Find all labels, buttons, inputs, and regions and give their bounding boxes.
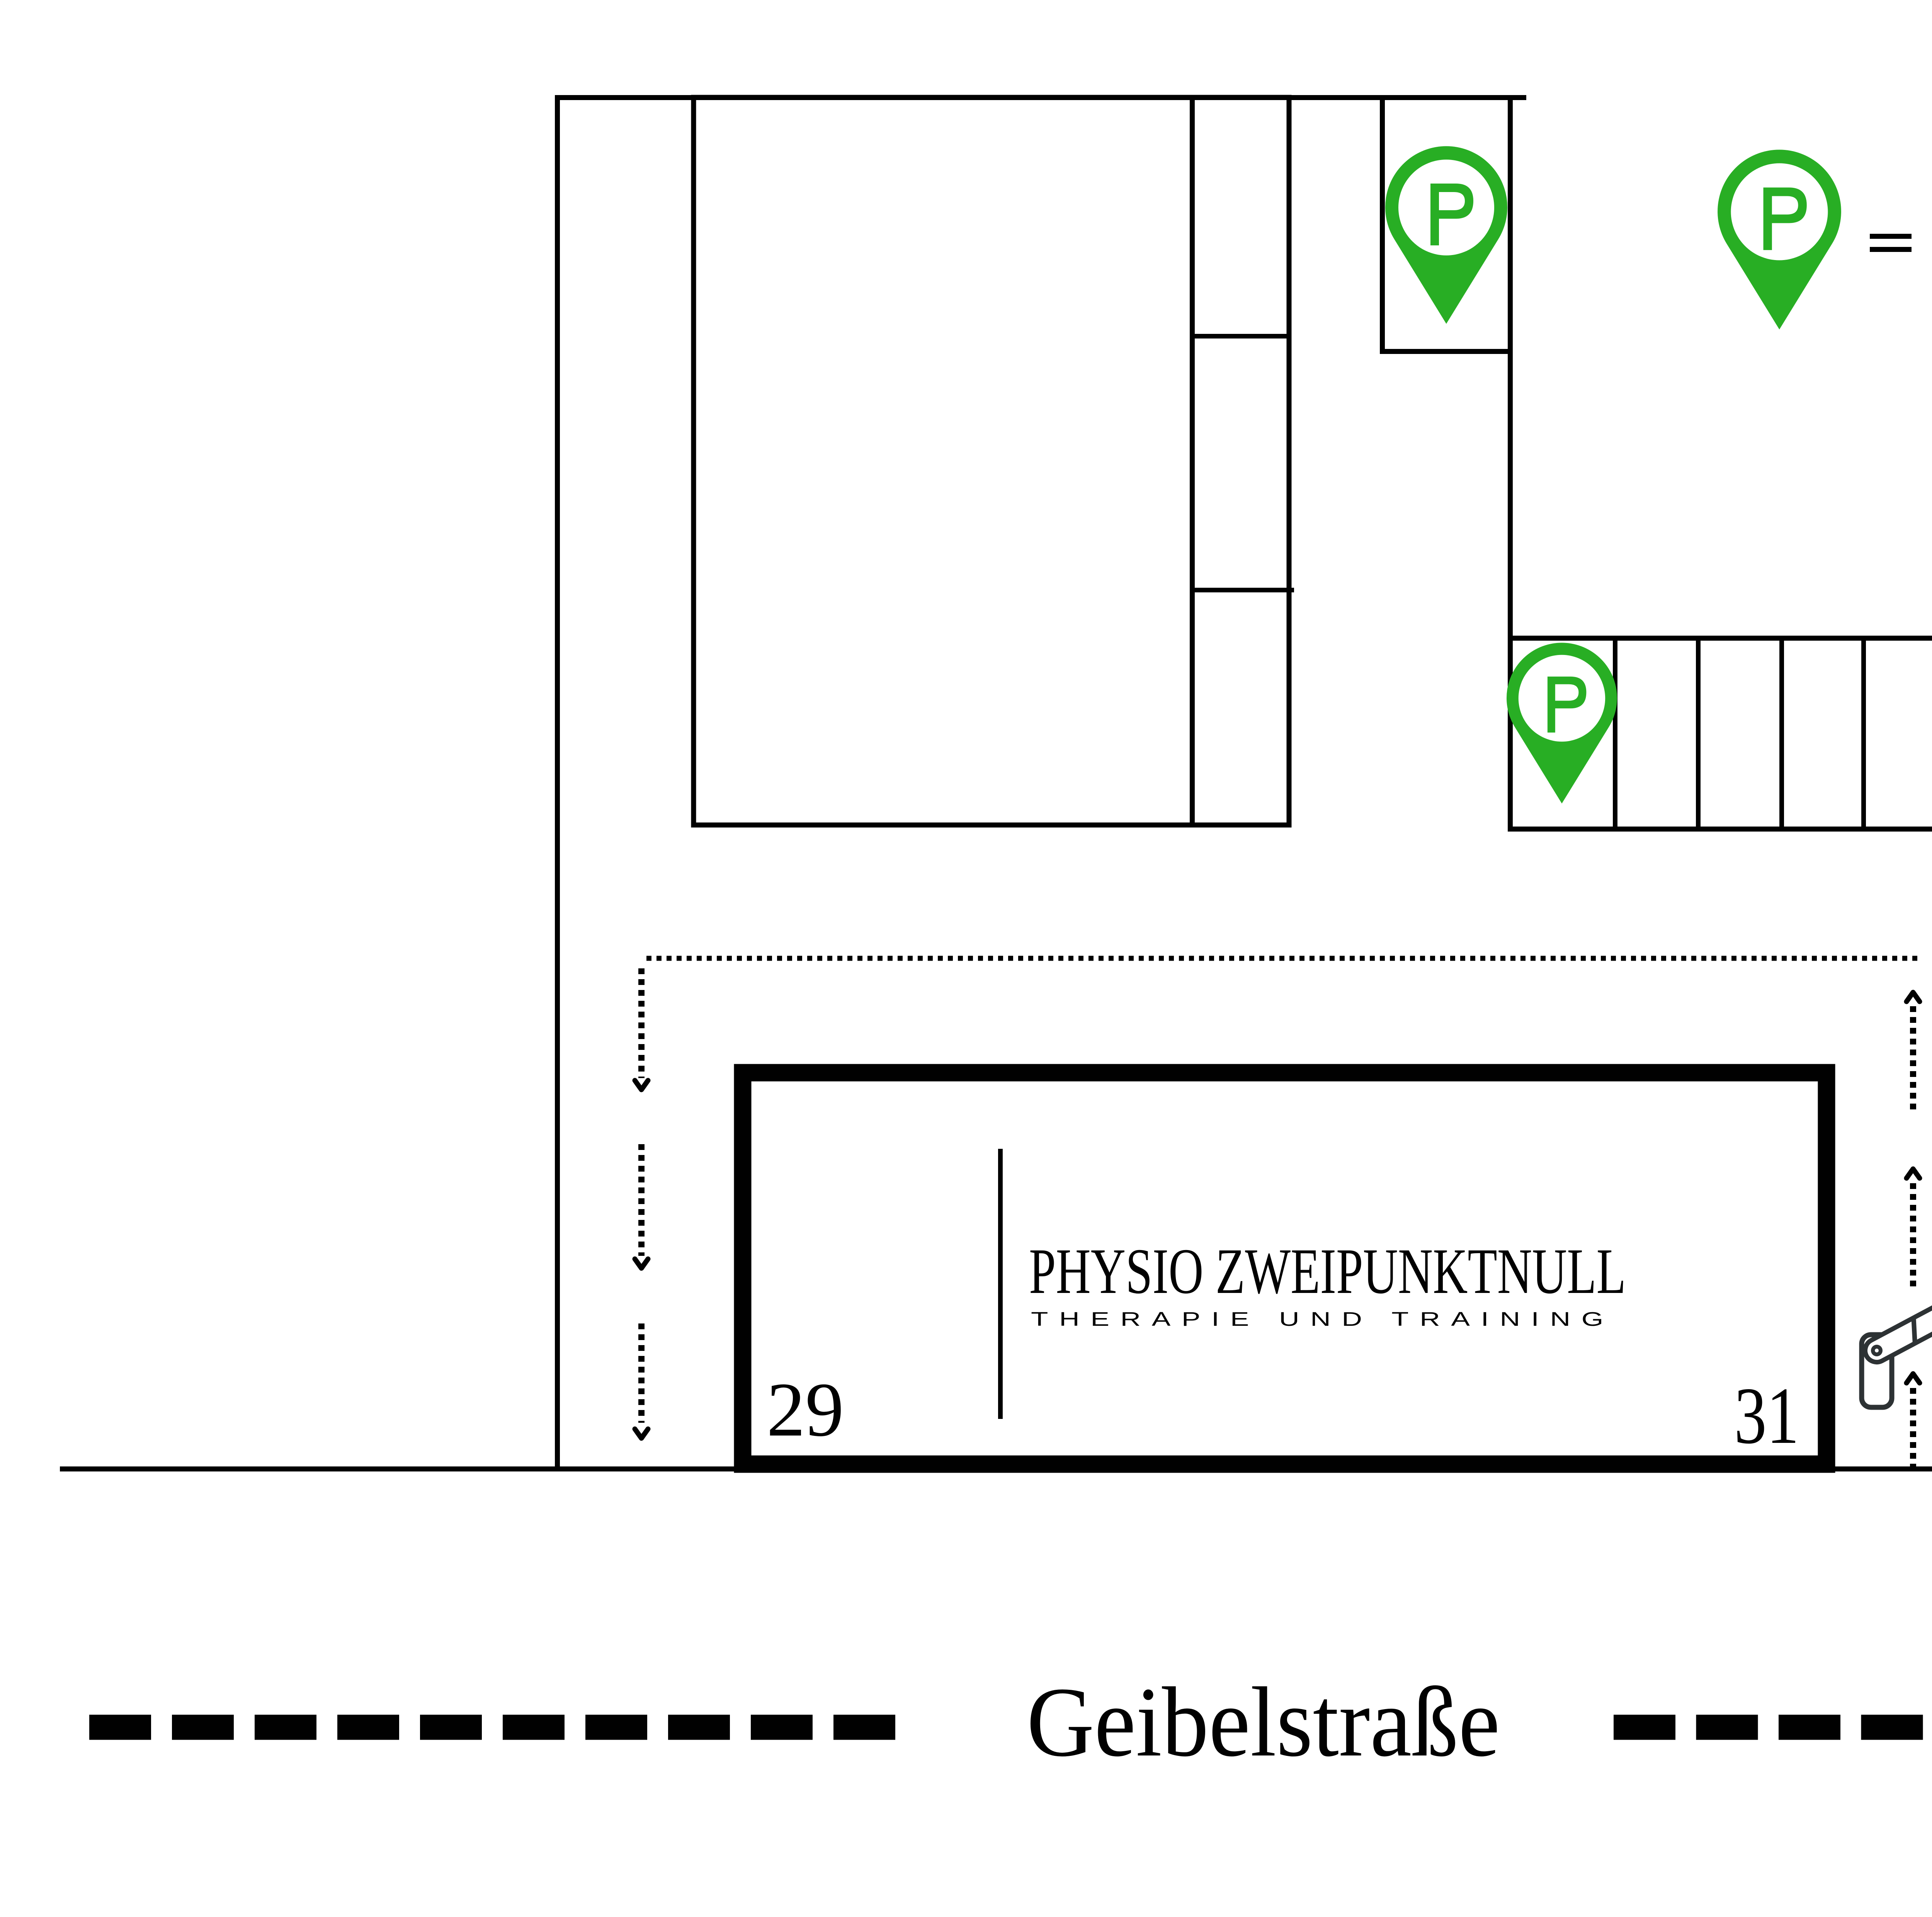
svg-text:31: 31 bbox=[1734, 1371, 1799, 1461]
svg-text:THERAPIE UND TRAINING: THERAPIE UND TRAINING bbox=[1031, 1308, 1614, 1330]
svg-text:Geibelstraße: Geibelstraße bbox=[1027, 1667, 1500, 1777]
svg-text:PHYSIO ZWEIPUNKTNULL: PHYSIO ZWEIPUNKTNULL bbox=[1029, 1235, 1626, 1307]
svg-text:29: 29 bbox=[767, 1367, 844, 1453]
